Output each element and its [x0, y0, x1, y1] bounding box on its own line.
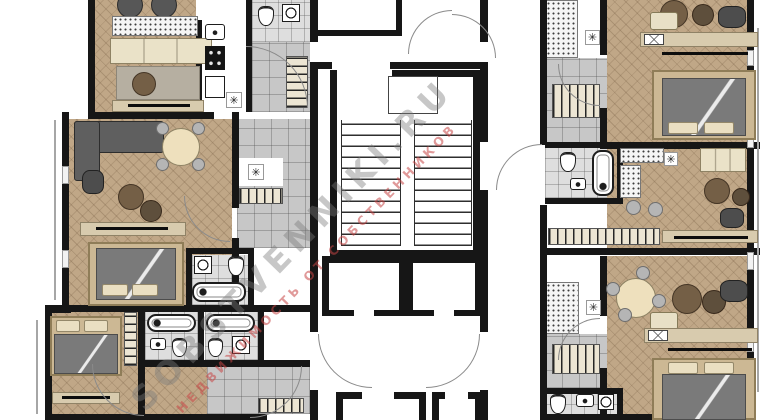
pillow [704, 362, 734, 374]
sink [150, 338, 166, 350]
bathtub [592, 150, 614, 196]
wall-segment [186, 248, 254, 254]
wall-segment [390, 62, 488, 69]
window [62, 250, 69, 268]
wall-segment [62, 268, 69, 306]
wall-segment [600, 0, 607, 55]
bench [650, 12, 678, 30]
pouf [140, 200, 162, 222]
wall-segment [540, 248, 760, 255]
rug [116, 66, 200, 100]
armchair [82, 170, 104, 194]
tv [668, 348, 752, 351]
tv [662, 52, 748, 55]
pillow [84, 320, 108, 332]
facade-line [54, 120, 56, 300]
elevator-1-wall [399, 256, 406, 316]
elevator-1-wall [322, 256, 329, 316]
armchair [720, 208, 744, 228]
wall-segment [480, 62, 488, 142]
door-arc [426, 334, 480, 388]
elevator-1-wall [322, 310, 354, 316]
dining-chair [192, 158, 205, 171]
bed-mattress [662, 374, 746, 420]
wall-segment [62, 184, 69, 250]
washer [282, 4, 300, 22]
pouf [704, 178, 730, 204]
washer [232, 336, 250, 354]
door-arc [318, 334, 372, 388]
elevator-2-wall [406, 256, 482, 263]
dining-chair [652, 294, 666, 308]
elevator-1-wall [322, 256, 406, 263]
stair-gap [403, 120, 412, 246]
elevator-2-wall [454, 310, 482, 316]
pouf [672, 284, 702, 314]
bathtub [147, 314, 196, 332]
counter-speckle [112, 16, 198, 36]
wall-segment [186, 248, 192, 312]
desk-chair [718, 6, 746, 28]
elevator-2-wall [475, 256, 482, 316]
wall-segment [600, 108, 607, 145]
pillow [668, 362, 698, 374]
pillow [668, 122, 698, 134]
pillow [132, 284, 158, 296]
stair-flight [341, 120, 401, 246]
wall-segment [318, 30, 402, 36]
light-fixture-icon: ✳ [248, 164, 264, 180]
bar-stool [648, 202, 663, 217]
pillow [102, 284, 128, 296]
facade-line [36, 320, 38, 414]
bathtub [206, 314, 255, 332]
media-box [644, 34, 664, 45]
wall-segment [248, 248, 254, 312]
door-arc [496, 144, 542, 190]
washer [598, 394, 614, 410]
bathtub [192, 282, 246, 302]
pouf [732, 188, 750, 206]
pouf [132, 72, 156, 96]
wardrobe [548, 228, 660, 245]
stove [205, 46, 225, 70]
counter-speckle [620, 165, 641, 198]
wardrobe [239, 188, 283, 204]
shaft-wall [419, 392, 426, 420]
tv [96, 227, 168, 230]
elevator-2-wall [406, 256, 413, 316]
stairwell-wall [473, 70, 480, 256]
light-fixture-icon: ✳ [664, 152, 678, 166]
wall-segment [310, 0, 318, 42]
stair-landing [388, 76, 438, 114]
dining-chair [606, 282, 620, 296]
fridge [205, 76, 225, 98]
wall-segment [198, 312, 204, 362]
hall-bl-wood-floor [145, 367, 207, 414]
floor-plan-canvas: ✳✳✳✳✳ SOBSTVENNIKI.RU НЕДВИЖИМОСТЬ ОТ СО… [0, 0, 760, 420]
shaft-wall [336, 392, 362, 399]
media-box [648, 330, 668, 341]
tv [128, 104, 190, 107]
light-fixture-icon: ✳ [586, 300, 601, 315]
wall-segment [45, 305, 310, 312]
wall-segment [540, 0, 547, 145]
wall-segment [318, 62, 332, 69]
sink [576, 394, 594, 407]
sink [570, 178, 586, 190]
wall-segment [310, 62, 318, 332]
pillow [56, 320, 80, 332]
tv [674, 236, 748, 239]
shaft-wall [475, 392, 482, 420]
sofa [110, 38, 212, 64]
wall-segment [545, 142, 625, 148]
dining-chair [192, 122, 205, 135]
shaft-wall [432, 392, 445, 399]
door-arc [408, 10, 452, 54]
stair-flight [414, 120, 472, 246]
wall-segment [310, 390, 318, 420]
wall-segment [545, 198, 623, 204]
window [747, 252, 754, 270]
light-fixture-icon: ✳ [585, 30, 600, 45]
door-arc [452, 14, 496, 58]
wall-segment [62, 112, 69, 166]
window [747, 50, 754, 66]
wall-segment [88, 112, 214, 119]
kitchen-tr-counter-speckle [545, 0, 578, 58]
dining-chair [618, 308, 632, 322]
dining-chair [156, 122, 169, 135]
wardrobe [124, 312, 137, 366]
washer [194, 256, 212, 274]
light-fixture-icon: ✳ [226, 92, 242, 108]
sink [205, 24, 225, 40]
wall-segment [747, 270, 754, 334]
dining-chair [156, 158, 169, 171]
pouf [692, 4, 714, 26]
elevator-2-wall [406, 310, 434, 316]
window [62, 166, 69, 184]
wall-segment [540, 205, 547, 418]
wall-segment [45, 414, 267, 420]
wall-segment [232, 112, 239, 208]
bar-stool [626, 200, 641, 215]
wall-segment [88, 0, 95, 112]
counter-speckle [620, 148, 664, 163]
wall-segment [258, 312, 264, 362]
desk-chair [720, 280, 748, 302]
stairwell-wall [330, 70, 337, 256]
pillow [704, 122, 734, 134]
sofa [700, 148, 746, 172]
dining-chair [636, 266, 650, 280]
elevator-1-wall [374, 310, 406, 316]
